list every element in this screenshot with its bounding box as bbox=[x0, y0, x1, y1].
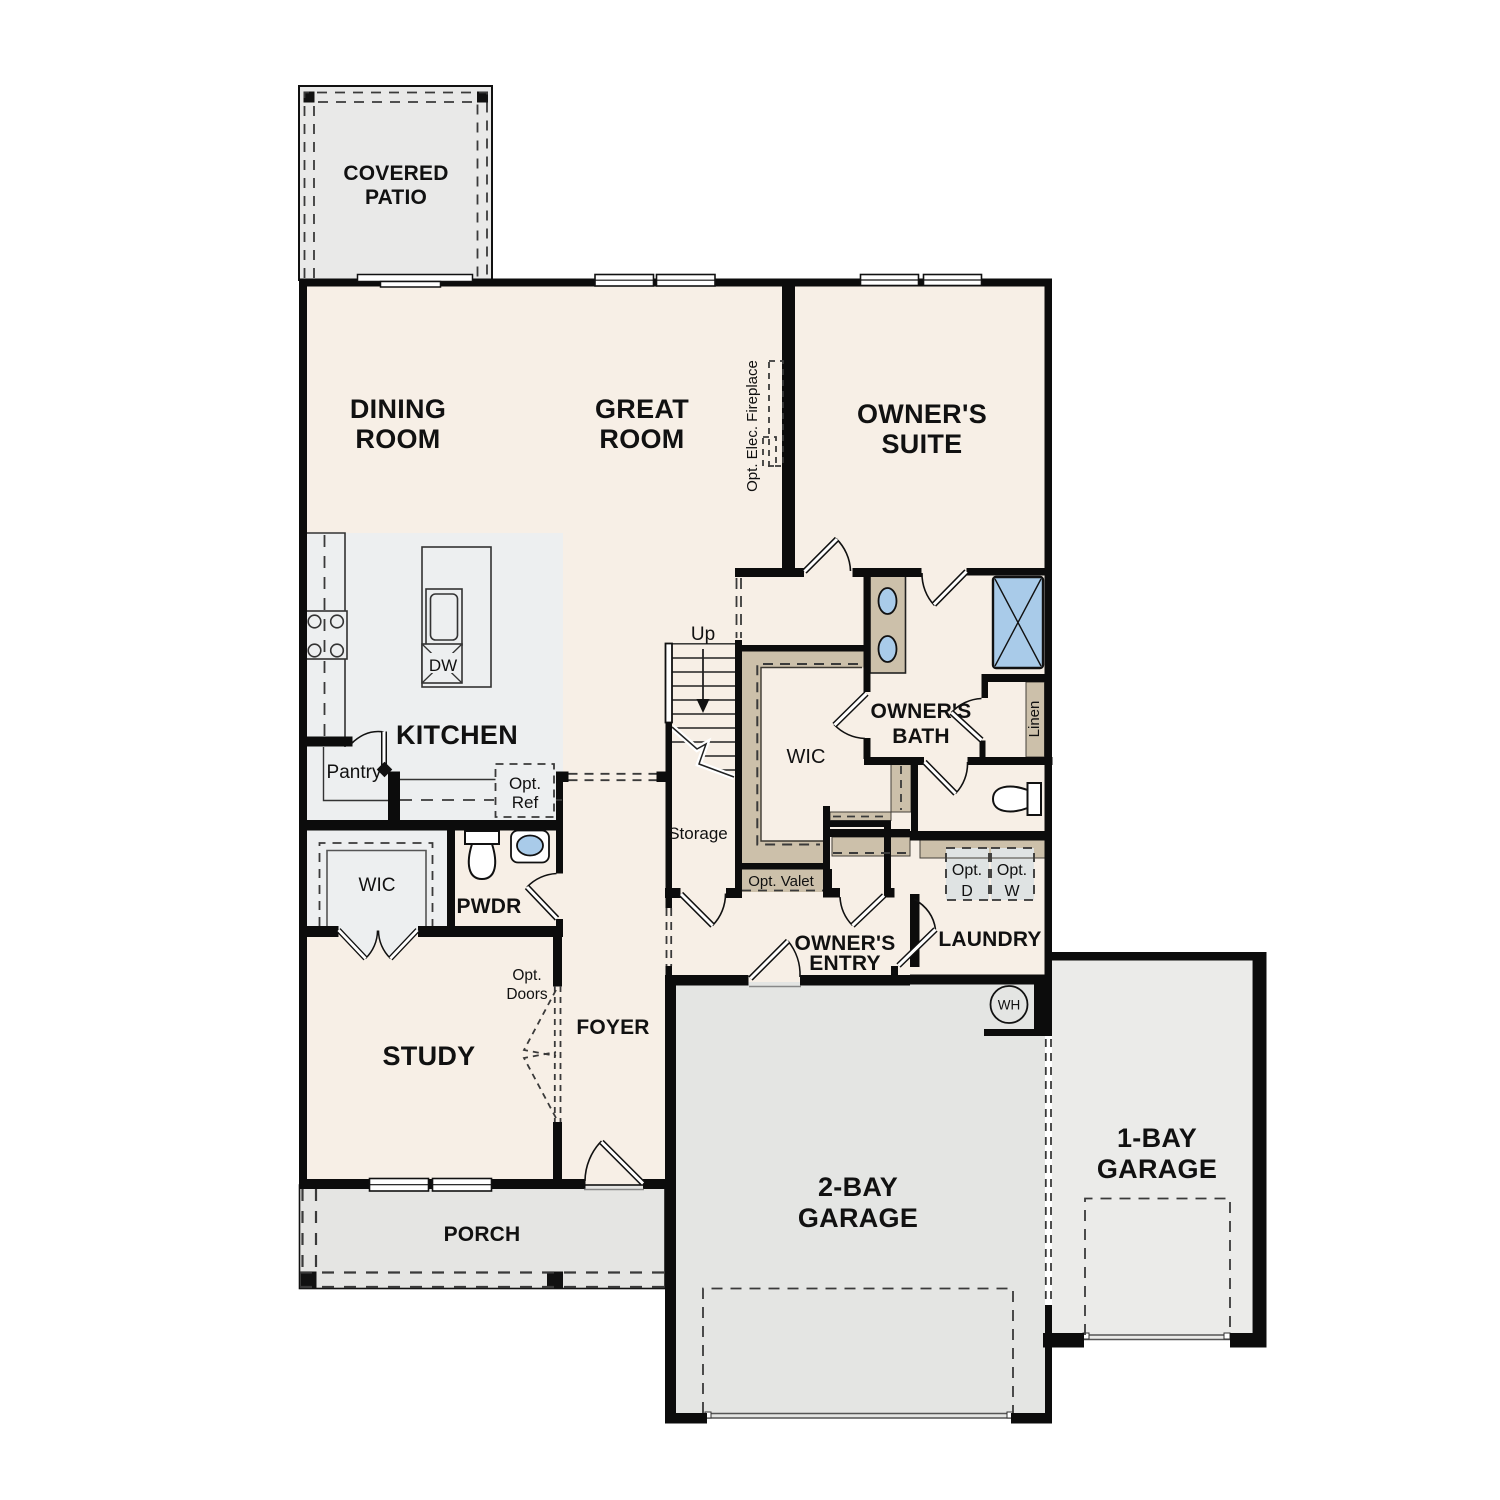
svg-text:Pantry: Pantry bbox=[327, 762, 382, 783]
svg-text:WH: WH bbox=[998, 998, 1021, 1013]
svg-text:PWDR: PWDR bbox=[457, 895, 522, 918]
svg-text:OWNER'S: OWNER'S bbox=[871, 700, 972, 723]
svg-text:LAUNDRY: LAUNDRY bbox=[938, 928, 1041, 951]
svg-text:Storage: Storage bbox=[668, 824, 728, 843]
svg-text:Opt.: Opt. bbox=[509, 774, 541, 793]
svg-text:Opt.: Opt. bbox=[997, 862, 1027, 879]
svg-text:KITCHEN: KITCHEN bbox=[396, 720, 518, 750]
svg-text:Opt. Valet: Opt. Valet bbox=[748, 873, 814, 890]
svg-text:PATIO: PATIO bbox=[365, 186, 427, 209]
svg-text:GREAT: GREAT bbox=[595, 394, 689, 424]
svg-text:Up: Up bbox=[691, 624, 715, 645]
svg-text:ROOM: ROOM bbox=[355, 424, 440, 454]
svg-text:SUITE: SUITE bbox=[881, 429, 962, 459]
svg-text:ENTRY: ENTRY bbox=[809, 952, 880, 975]
svg-text:OWNER'S: OWNER'S bbox=[857, 399, 987, 429]
svg-text:FOYER: FOYER bbox=[576, 1016, 649, 1039]
svg-text:Opt.: Opt. bbox=[512, 967, 541, 984]
svg-text:1-BAY: 1-BAY bbox=[1117, 1123, 1197, 1153]
svg-text:Linen: Linen bbox=[1026, 701, 1043, 738]
svg-text:D: D bbox=[961, 883, 973, 900]
svg-text:WIC: WIC bbox=[359, 875, 396, 896]
svg-text:Opt.: Opt. bbox=[952, 862, 982, 879]
svg-text:2-BAY: 2-BAY bbox=[818, 1172, 898, 1202]
svg-text:DINING: DINING bbox=[350, 394, 446, 424]
svg-text:GARAGE: GARAGE bbox=[798, 1203, 918, 1233]
svg-text:Ref: Ref bbox=[512, 793, 539, 812]
svg-text:GARAGE: GARAGE bbox=[1097, 1154, 1217, 1184]
svg-text:DW: DW bbox=[429, 656, 457, 675]
svg-text:PORCH: PORCH bbox=[444, 1223, 521, 1246]
svg-text:Doors: Doors bbox=[506, 986, 548, 1003]
svg-text:ROOM: ROOM bbox=[599, 424, 684, 454]
svg-text:W: W bbox=[1004, 883, 1020, 900]
svg-text:COVERED: COVERED bbox=[343, 162, 448, 185]
svg-text:STUDY: STUDY bbox=[382, 1041, 475, 1071]
svg-text:BATH: BATH bbox=[892, 725, 950, 748]
svg-text:WIC: WIC bbox=[787, 746, 826, 768]
svg-text:Opt. Elec. Fireplace: Opt. Elec. Fireplace bbox=[744, 360, 761, 492]
